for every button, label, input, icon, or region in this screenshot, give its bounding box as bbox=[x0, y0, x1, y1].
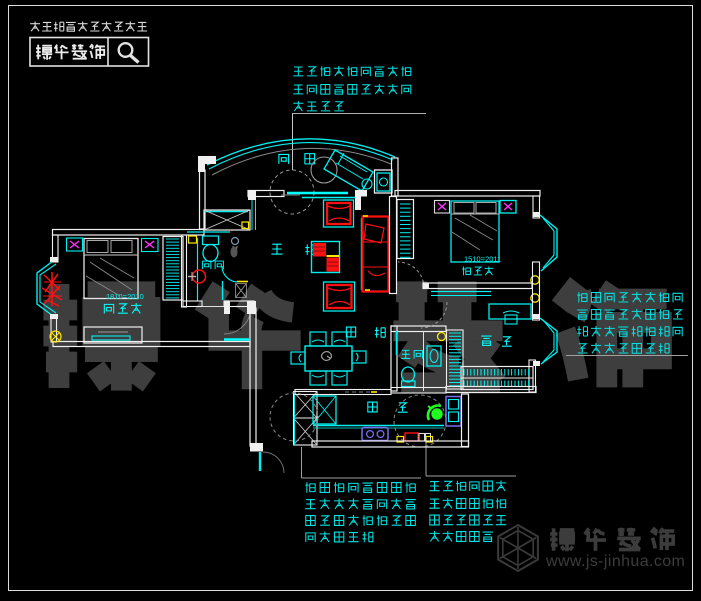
svg-text:1510=2011: 1510=2011 bbox=[464, 255, 501, 264]
svg-text:www.js-jinhua.com: www.js-jinhua.com bbox=[545, 553, 685, 570]
svg-text:1810=2010: 1810=2010 bbox=[106, 292, 144, 301]
